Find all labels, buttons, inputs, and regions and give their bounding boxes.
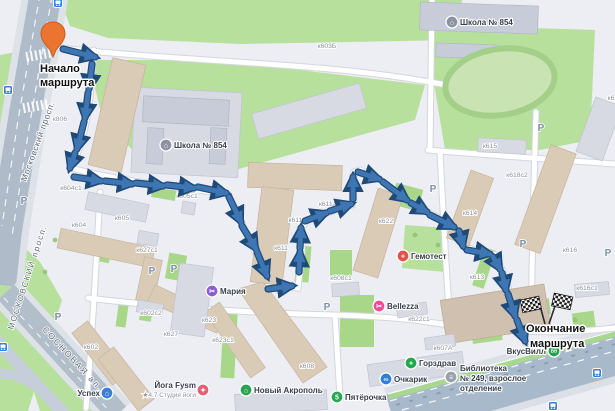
- poi-school-854-east[interactable]: ⌂Школа № 854: [446, 16, 513, 28]
- building-label: к608с1: [330, 275, 352, 282]
- route-arrow: [105, 181, 132, 184]
- school-854-east-label: Школа № 854: [460, 18, 513, 27]
- bellezza-icon-glyph: ✂: [376, 304, 382, 311]
- parking-icon[interactable]: P: [21, 196, 28, 207]
- route-arrow: [136, 183, 163, 186]
- building-label: к614: [463, 210, 478, 217]
- library-249-label: Библиотека: [460, 364, 507, 373]
- poi-gorzdrav[interactable]: +Горздрав: [405, 357, 456, 369]
- transit-stop-icon[interactable]: [0, 343, 8, 352]
- poi-gemotest[interactable]: +Гемотест: [397, 250, 447, 262]
- building-label: к623: [202, 317, 217, 324]
- novy-akropol-label: Новый Акрополь: [254, 386, 323, 395]
- pyaterochka-label: Пятёрочка: [345, 393, 387, 402]
- building-label: к602: [84, 344, 99, 351]
- poi-maria[interactable]: ✂Мария: [206, 285, 246, 297]
- gorzdrav-icon-glyph: +: [409, 361, 413, 368]
- route-arrow: [300, 228, 301, 248]
- school-854-west-icon-glyph: ⌂: [164, 143, 168, 150]
- start-label-line2: маршрута: [40, 77, 95, 89]
- route-arrow: [268, 286, 292, 289]
- map-canvas[interactable]: к806к604с1к605с1к605к604к627с1к602с2к627…: [0, 0, 615, 411]
- transit-stop-icon[interactable]: [593, 369, 602, 378]
- yoga-fysm-icon-glyph: ✦: [200, 387, 206, 395]
- school-854-east-icon-glyph: ⌂: [450, 20, 454, 27]
- end-label-line1: Окончание: [526, 323, 585, 335]
- building-label: к627: [164, 331, 179, 338]
- building-label: к608: [300, 363, 315, 370]
- yoga-fysm-label: ★4.7 Студия йоги: [143, 391, 197, 399]
- building-label: к618с2: [506, 172, 528, 179]
- library-249-label: № 249, взрослое: [460, 374, 527, 383]
- uspekh-icon-glyph: ⌂: [105, 391, 109, 398]
- parking-icon[interactable]: P: [55, 312, 62, 323]
- building-label: к616с1: [576, 285, 598, 292]
- poi-uspekh[interactable]: ⌂Успех: [77, 387, 113, 399]
- transit-stop-icon[interactable]: [549, 402, 558, 411]
- parking-icon[interactable]: P: [149, 266, 156, 277]
- parking-icon[interactable]: P: [538, 123, 545, 134]
- building-label: к604с1: [60, 185, 82, 192]
- maria-icon-glyph: ✂: [209, 289, 215, 296]
- end-label-line2: маршрута: [530, 338, 585, 350]
- pyaterochka-icon-glyph: 5: [335, 395, 339, 402]
- building-label: к603Б: [318, 43, 337, 50]
- building-label: к627с1: [136, 247, 158, 254]
- parking-icon[interactable]: P: [324, 302, 331, 313]
- library-249-label: отделение: [460, 384, 502, 393]
- route-arrow: [167, 185, 194, 188]
- building-label: к611: [274, 245, 288, 252]
- school-854-west-label: Школа № 854: [174, 141, 227, 150]
- ochkarik-label: Очкарик: [394, 375, 428, 384]
- gemotest-label: Гемотест: [411, 252, 447, 261]
- poi-pyaterochka[interactable]: 5Пятёрочка: [331, 391, 387, 403]
- yoga-fysm-label: Йога Fysm: [154, 381, 196, 390]
- building-label: к6: [608, 95, 615, 102]
- gemotest-icon-glyph: +: [401, 254, 405, 261]
- uspekh-label: Успех: [77, 389, 100, 398]
- map-root: к806к604с1к605с1к605к604к627с1к602с2к627…: [0, 0, 615, 411]
- parking-icon[interactable]: P: [430, 184, 437, 195]
- poi-ochkarik[interactable]: ∞Очкарик: [380, 373, 428, 385]
- building-label: к806: [53, 116, 68, 123]
- building-label: к616: [563, 247, 578, 254]
- building-label: к615: [483, 143, 498, 150]
- gorzdrav-label: Горздрав: [419, 359, 456, 368]
- library-249-icon-glyph: ≡: [449, 375, 453, 382]
- parking-icon[interactable]: P: [605, 248, 612, 259]
- ochkarik-icon-glyph: ∞: [384, 377, 389, 384]
- building-label: к604: [72, 222, 87, 229]
- building-label: к623с1: [212, 337, 234, 344]
- parking-icon[interactable]: P: [520, 239, 527, 250]
- building-label: к613: [470, 274, 485, 281]
- building-label: к605: [115, 215, 130, 222]
- building-label: к605с1: [176, 193, 198, 200]
- bellezza-label: Bellezza: [387, 302, 419, 311]
- route-arrow: [299, 252, 300, 272]
- maria-label: Мария: [220, 287, 246, 296]
- parking-icon[interactable]: P: [171, 264, 178, 275]
- route-arrow: [85, 93, 88, 118]
- transit-stop-icon[interactable]: [4, 86, 13, 95]
- novy-akropol-icon-glyph: ⌂: [244, 388, 248, 395]
- building-label: к622: [379, 218, 394, 225]
- poi-bellezza[interactable]: ✂Bellezza: [373, 300, 419, 312]
- building-label: к607А: [434, 345, 453, 352]
- building-label: к622с1: [408, 316, 430, 323]
- start-label-line1: Начало: [40, 63, 80, 75]
- building-label: к602с2: [140, 310, 162, 317]
- transit-stop-icon[interactable]: [54, 0, 63, 8]
- poi-school-854-west[interactable]: ⌂Школа № 854: [160, 139, 227, 151]
